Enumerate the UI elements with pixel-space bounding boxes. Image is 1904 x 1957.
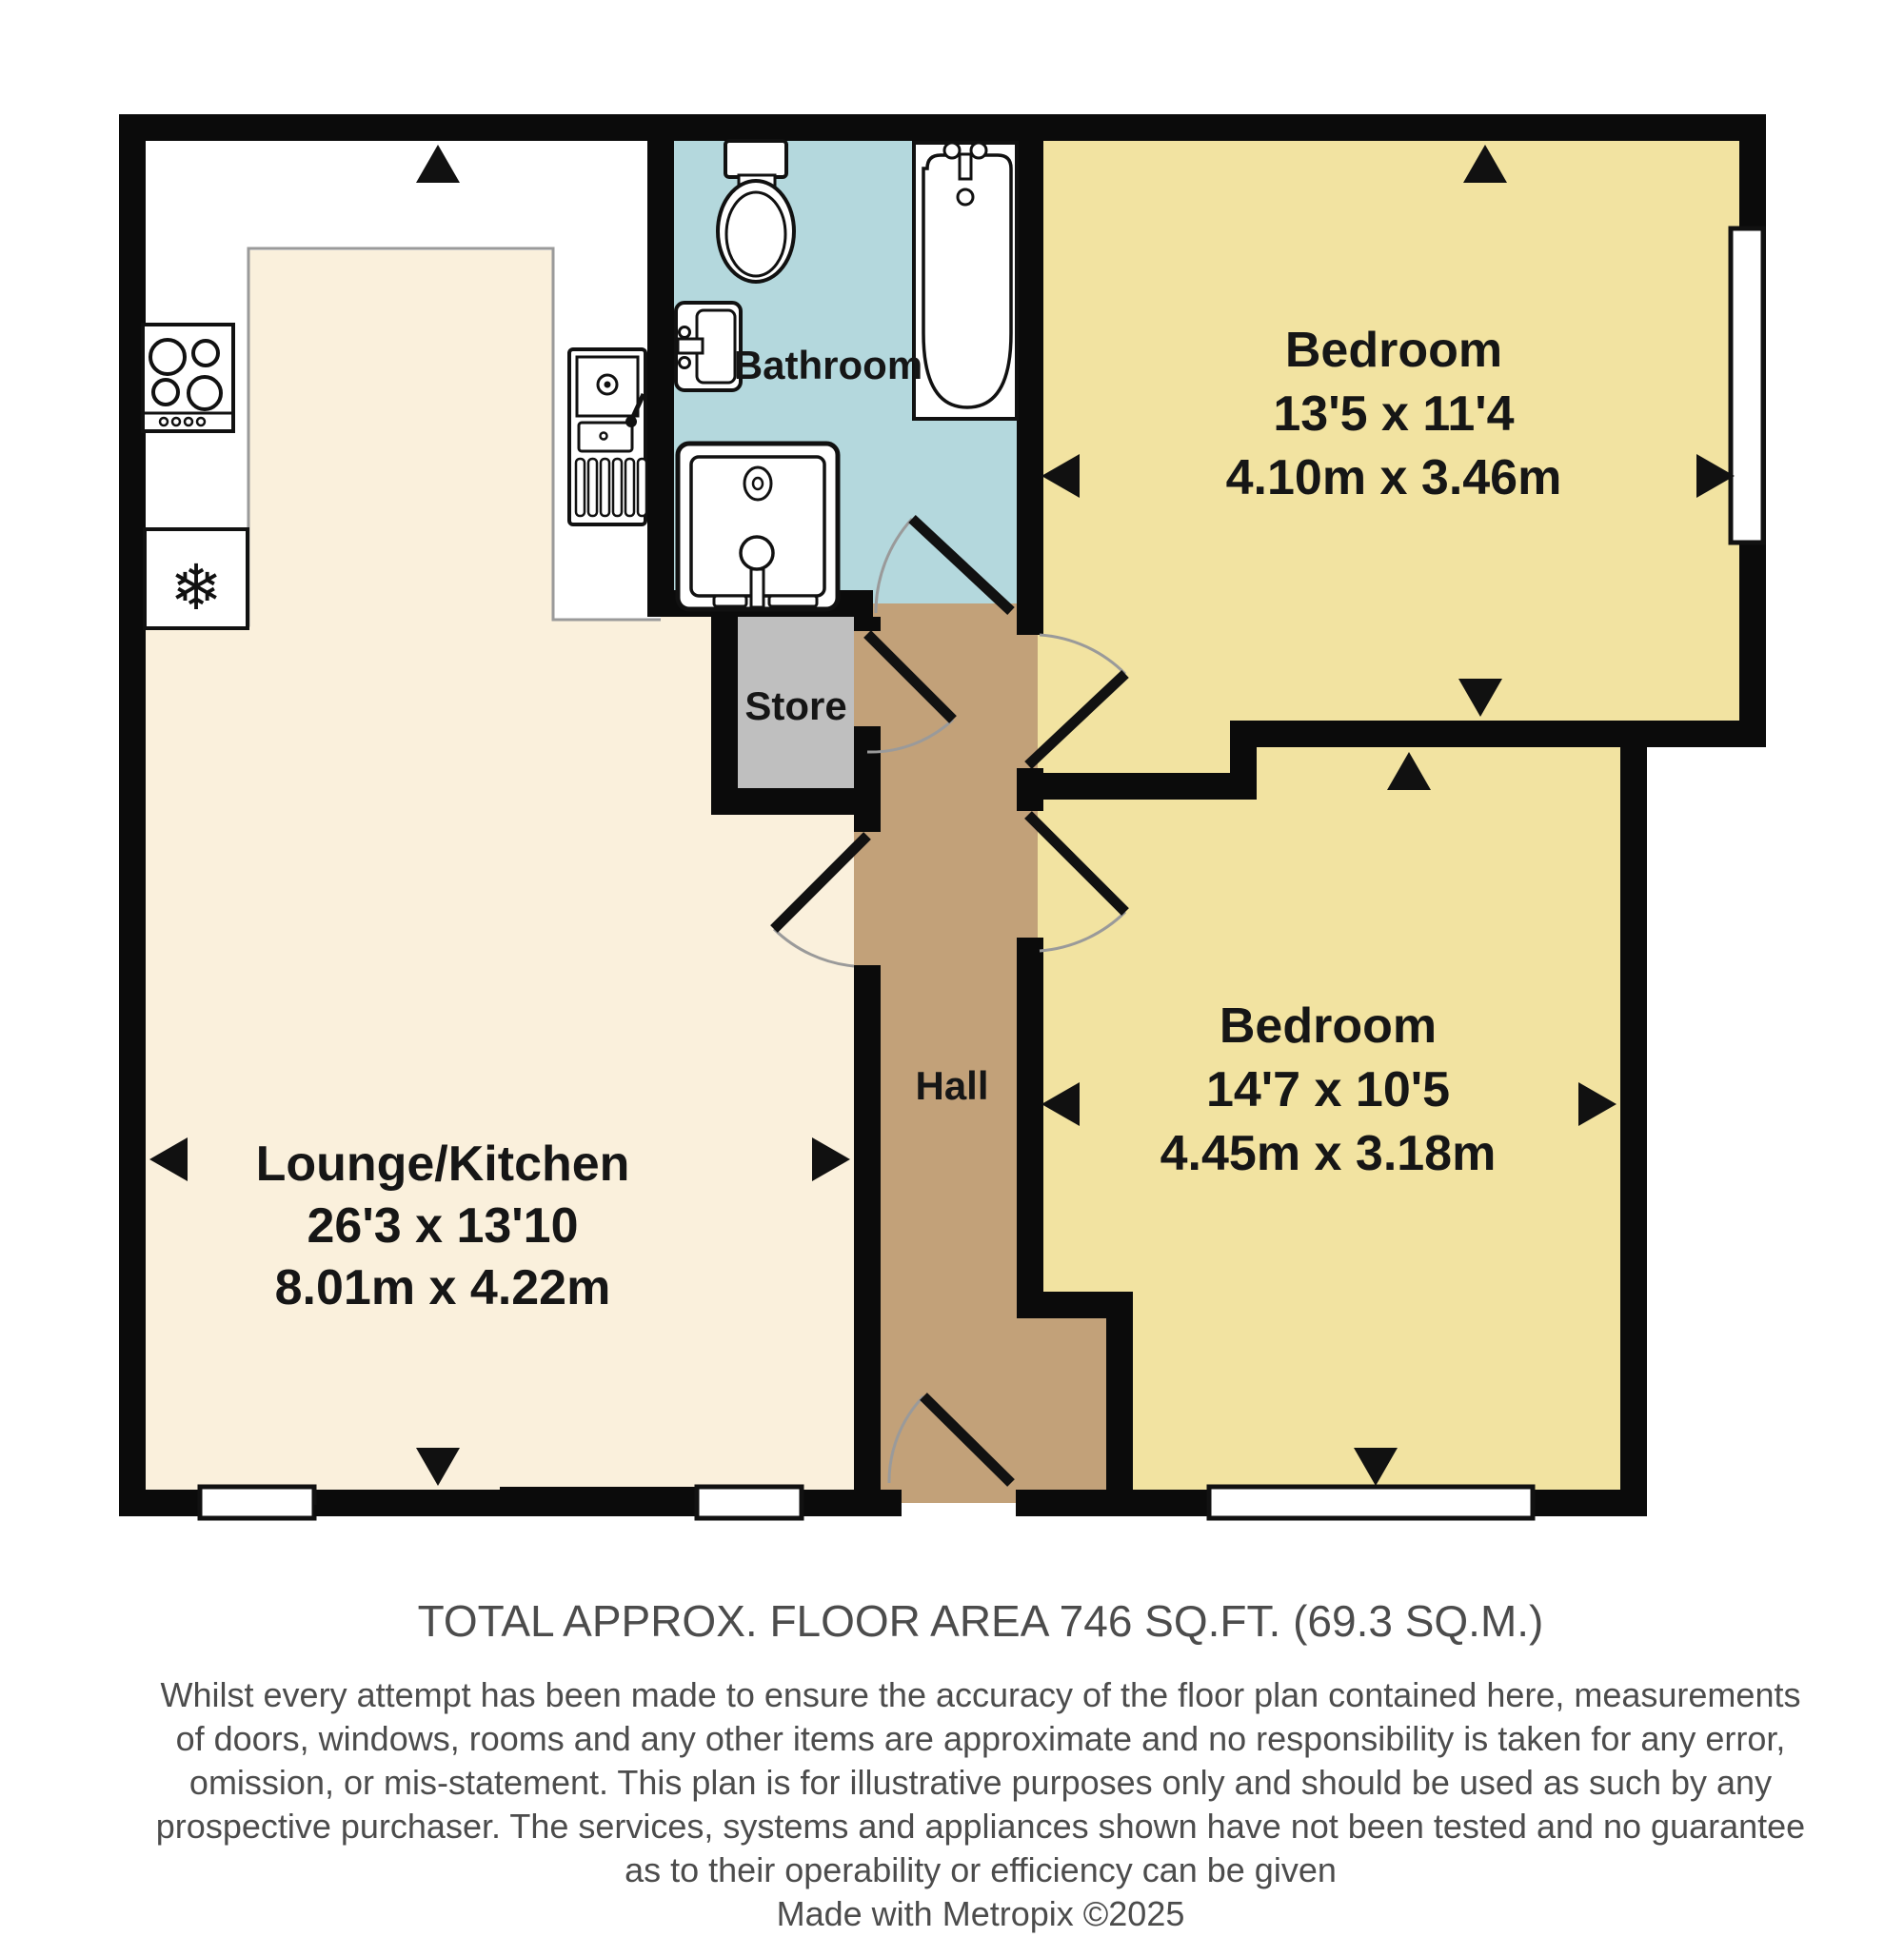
store-label: Store [744,683,846,728]
bathroom-basin-icon [676,303,741,390]
lounge-window-2 [697,1487,802,1518]
wall-kitchen-bathroom [647,114,674,617]
wall-lounge-hall [854,965,881,1490]
wall-hall-bedroom2 [1017,938,1043,1305]
wall-hall-stub-top [854,815,881,832]
wall-store-left [711,590,738,815]
disclaimer-line: Whilst every attempt has been made to en… [57,1673,1904,1717]
wall-store-right-lower [854,726,881,788]
disclaimer-text: Whilst every attempt has been made to en… [57,1673,1904,1892]
bathtub-icon [914,143,1017,419]
wall-bathroom-bedroom1 [1017,114,1043,604]
kitchen-sink-icon [569,349,646,524]
floorplan-drawing: ❄ [0,0,1904,1580]
bedroom1-dims-metric: 4.10m x 3.46m [1226,450,1562,505]
lounge-bay-bar-low [314,1505,500,1516]
bathroom-label: Bathroom [734,343,922,387]
bedroom2-label: Bedroom [1220,998,1437,1054]
lounge-label: Lounge/Kitchen [256,1137,630,1192]
disclaimer-line: as to their operability or efficiency ca… [57,1848,1904,1892]
wall-jamb-bedroom1-bottom [1017,768,1043,811]
footer: TOTAL APPROX. FLOOR AREA 746 SQ.FT. (69.… [57,1595,1904,1936]
disclaimer-line: omission, or mis-statement. This plan is… [57,1761,1904,1805]
svg-text:❄: ❄ [169,552,222,623]
wall-store-bottom [711,788,881,815]
wall-bedrooms-divide-high [1230,721,1766,747]
freezer-icon: ❄ [145,529,248,628]
lounge-dims-metric: 8.01m x 4.22m [275,1260,611,1315]
wall-store-right-stub [854,617,881,631]
bedroom2-dims-imperial: 14'7 x 10'5 [1206,1062,1450,1117]
wall-top [119,114,1766,141]
disclaimer-line: of doors, windows, rooms and any other i… [57,1717,1904,1761]
kitchen-counter-top [146,141,661,250]
bedroom1-dims-imperial: 13'5 x 11'4 [1273,386,1514,442]
hall-label: Hall [915,1063,988,1108]
bedroom1-label: Bedroom [1285,323,1502,378]
wall-jamb-bedroom1-top [1017,604,1043,635]
shower-basin-icon [678,444,838,609]
disclaimer-line: prospective purchaser. The services, sys… [57,1805,1904,1848]
credit-text: Made with Metropix ©2025 [57,1892,1904,1936]
bedroom2-window [1209,1487,1533,1518]
toilet-icon [718,141,794,282]
bedroom1-window [1731,228,1763,543]
lounge-window-1 [200,1487,314,1518]
total-area-text: TOTAL APPROX. FLOOR AREA 746 SQ.FT. (69.… [57,1595,1904,1647]
wall-bedroom2-right [1620,721,1647,1516]
lounge-dims-imperial: 26'3 x 13'10 [307,1198,579,1254]
lounge-bay-bar-high [500,1487,697,1498]
wall-bedroom2-lower-left [1106,1292,1133,1516]
hob-icon [143,325,233,431]
bedroom2-dims-metric: 4.45m x 3.18m [1160,1126,1497,1181]
floorplan-page: { "plan": { "rooms": { "lounge": {"name"… [0,0,1904,1957]
wall-bedrooms-divide-low [1017,773,1257,800]
